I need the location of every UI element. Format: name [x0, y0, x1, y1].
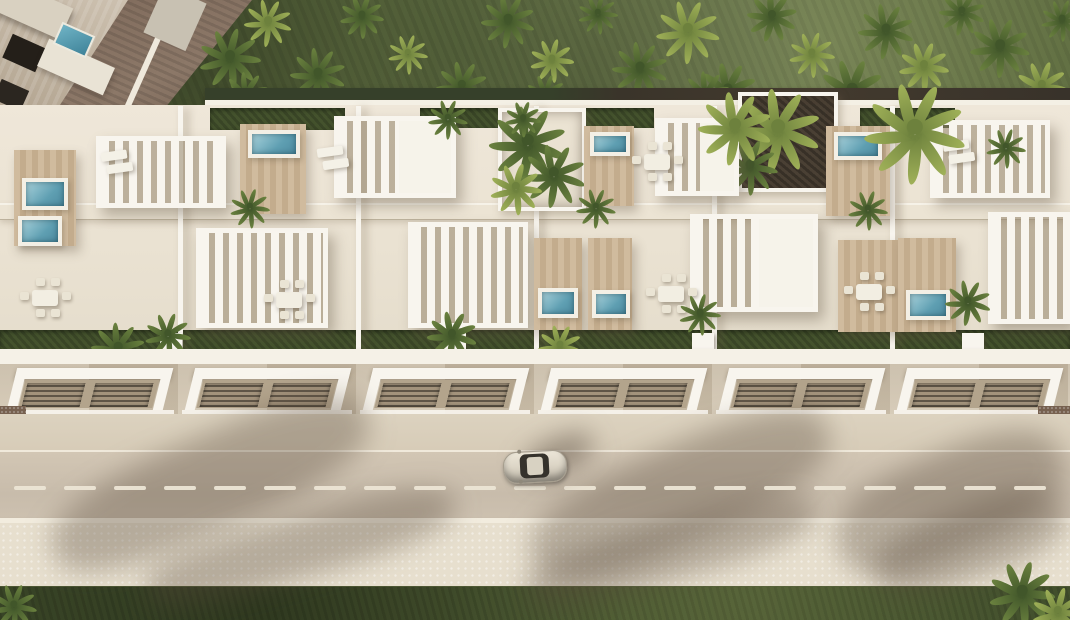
- lane-dash: [914, 486, 946, 490]
- car: [502, 449, 565, 482]
- lane-dash: [664, 486, 696, 490]
- lane-dash: [614, 486, 646, 490]
- lane-dash: [64, 486, 96, 490]
- lane-dash: [714, 486, 746, 490]
- aerial-render-scene: [0, 0, 1070, 620]
- lane-dash: [364, 486, 396, 490]
- lane-dash: [264, 486, 296, 490]
- lane-dash: [764, 486, 796, 490]
- lane-dash: [214, 486, 246, 490]
- lane-dash: [464, 486, 496, 490]
- lane-dash: [314, 486, 346, 490]
- lane-dash: [1014, 486, 1046, 490]
- foreground-palm-icon: [1032, 584, 1070, 620]
- palm-crown: [1017, 585, 1028, 596]
- lane-dash: [14, 486, 46, 490]
- lane-dash: [964, 486, 996, 490]
- road-items: [0, 0, 1070, 620]
- lane-dash: [864, 486, 896, 490]
- car-roof: [527, 457, 544, 476]
- lane-dash: [814, 486, 846, 490]
- lane-dash: [564, 486, 596, 490]
- lane-dash: [164, 486, 196, 490]
- lane-dash: [414, 486, 446, 490]
- lane-dash: [514, 486, 546, 490]
- foreground-palm-icon: [0, 581, 37, 620]
- lane-dash: [114, 486, 146, 490]
